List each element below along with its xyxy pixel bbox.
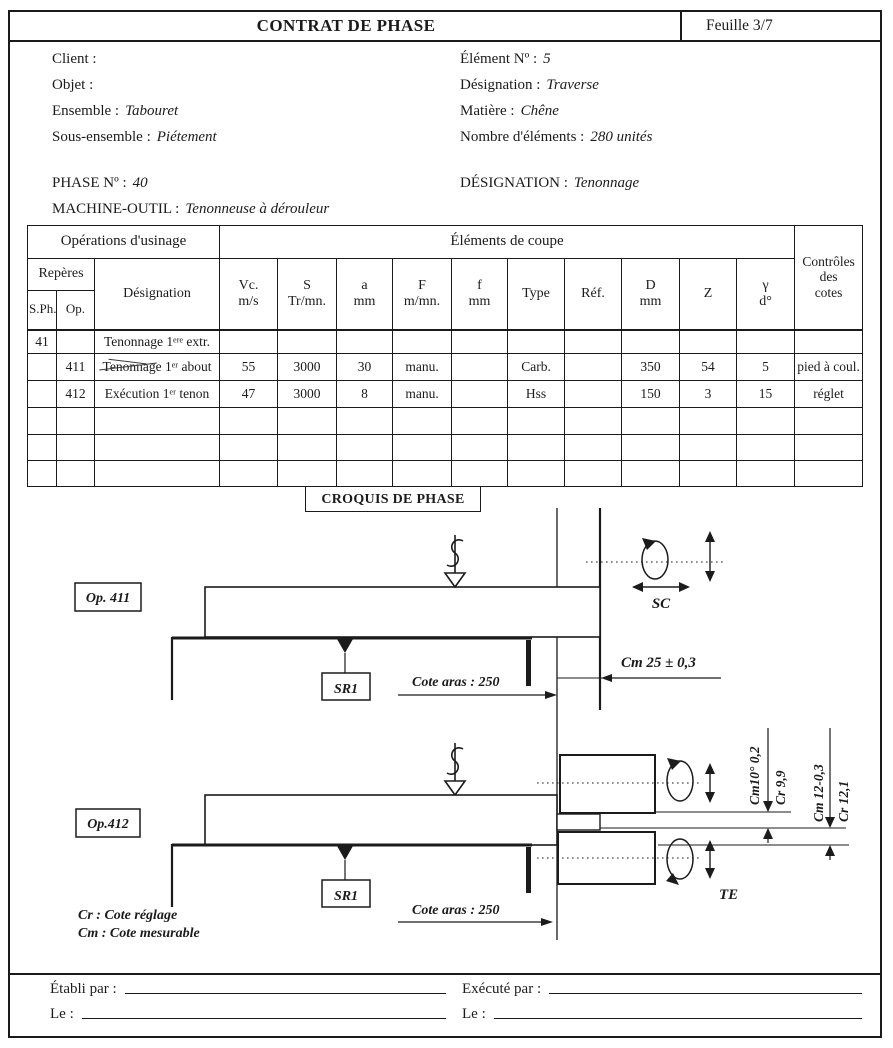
ensemble-label: Ensemble :: [52, 103, 119, 119]
table-cell: [508, 330, 565, 354]
ensemble-value: Tabouret: [125, 103, 178, 119]
op411-cm-arrowhead: [601, 674, 612, 682]
op411-drawing: Op. 411 SR1 Cote aras : 250 SC Cm: [75, 531, 726, 700]
signature-section: Établi par : Exécuté par : Le : Le :: [10, 973, 880, 1038]
objet-label: Objet :: [52, 77, 93, 93]
table-cell: [795, 330, 863, 354]
table-cell: [622, 461, 680, 487]
page-title: CONTRAT DE PHASE: [10, 12, 682, 40]
execute-par-row: Exécuté par :: [462, 981, 862, 998]
table-cell: [452, 354, 508, 381]
client-label: Client :: [52, 51, 97, 67]
table-cell: Tenonnage 1ᵉʳ about: [95, 354, 220, 381]
dim-cm12-label: Cm 12-0,3: [811, 764, 826, 822]
dim-cr99-label: Cr 9,9: [773, 770, 788, 805]
arrowhead: [705, 763, 715, 774]
table-row: 41Tenonnage 1ᵉʳᵉ extr.: [28, 330, 863, 354]
op412-cote-aras-label: Cote aras : 250: [412, 903, 500, 918]
table-cell: [680, 461, 737, 487]
le-right-label: Le :: [462, 1006, 486, 1023]
designation-label: Désignation :: [460, 77, 540, 93]
table-cell: [795, 435, 863, 461]
info-ensemble: Ensemble :Tabouret: [52, 98, 217, 124]
support-assembly-op411: SR1: [172, 637, 532, 700]
table-cell: [565, 381, 622, 408]
table-cell: 411: [57, 354, 95, 381]
info-phase: PHASE Nº :40: [52, 170, 329, 196]
table-row: [28, 435, 863, 461]
table-cell: [680, 435, 737, 461]
table-cell: Hss: [508, 381, 565, 408]
te-label: TE: [719, 887, 738, 903]
table-cell: [452, 408, 508, 435]
table-cell: [622, 435, 680, 461]
table-cell: 55: [220, 354, 278, 381]
nombre-value: 280 unités: [590, 129, 652, 145]
etabli-par-signature-line: [125, 981, 446, 994]
dim-cm10-label: Cm10° 0,2: [747, 746, 762, 805]
nombre-label: Nombre d'éléments :: [460, 129, 584, 145]
table-cell: [737, 435, 795, 461]
table-cell: [57, 408, 95, 435]
table-cell: [393, 461, 452, 487]
table-cell: [508, 461, 565, 487]
sous-ensemble-value: Piétement: [157, 129, 217, 145]
table-cell: 3: [680, 381, 737, 408]
op412-label: Op.412: [87, 817, 129, 832]
table-cell: [57, 435, 95, 461]
table-cell: [737, 408, 795, 435]
table-cell: [278, 408, 337, 435]
table-cell: [508, 408, 565, 435]
arrowhead: [763, 801, 773, 812]
support-assembly-op412: [172, 844, 532, 907]
header-f-cap: F m/mn.: [393, 259, 452, 330]
info-client: Client :: [52, 46, 217, 72]
matiere-label: Matière :: [460, 103, 515, 119]
info-matiere: Matière :Chêne: [460, 98, 652, 124]
info-right-column: Élément Nº :5 Désignation :Traverse Mati…: [460, 46, 652, 150]
sous-ensemble-label: Sous-ensemble :: [52, 129, 151, 145]
execute-par-signature-line: [549, 981, 862, 994]
table-cell: [278, 435, 337, 461]
element-value: 5: [543, 51, 551, 67]
header-d: D mm: [622, 259, 680, 330]
header-sph: S.Ph.: [28, 291, 57, 330]
op412-cote-aras-arrowhead: [541, 918, 553, 926]
table-cell: [220, 330, 278, 354]
phase-designation-value: Tenonnage: [574, 175, 639, 191]
group-controles: Contrôles des cotes: [795, 226, 863, 330]
table-cell: [278, 330, 337, 354]
table-cell: [337, 435, 393, 461]
table-cell: [337, 408, 393, 435]
contrat-de-phase-document: { "colors": { "ink": "#1b1b1b", "paper":…: [0, 0, 893, 1048]
etabli-par-row: Établi par :: [50, 981, 446, 998]
op411-cote-aras-label: Cote aras : 250: [412, 675, 500, 690]
sc-label: SC: [652, 596, 671, 612]
table-cell: [565, 354, 622, 381]
table-cell: pied à coul.: [795, 354, 863, 381]
table-cell: 30: [337, 354, 393, 381]
op411-cm-dimension-label: Cm 25 ± 0,3: [621, 655, 696, 671]
table-cell: réglet: [795, 381, 863, 408]
header-reperes: Repères: [28, 259, 95, 291]
table-cell: Tenonnage 1ᵉʳᵉ extr.: [95, 330, 220, 354]
info-nombre: Nombre d'éléments :280 unités: [460, 124, 652, 150]
arrowhead: [705, 792, 715, 803]
group-operations: Opérations d'usinage: [28, 226, 220, 259]
arrowhead: [705, 531, 715, 542]
arrowhead: [679, 582, 690, 592]
table-cell: [622, 330, 680, 354]
table-cell: manu.: [393, 354, 452, 381]
header-ref: Réf.: [565, 259, 622, 330]
dim-cr121-label: Cr 12,1: [836, 781, 851, 822]
operations-table-body: 41Tenonnage 1ᵉʳᵉ extr.411Tenonnage 1ᵉʳ a…: [28, 330, 863, 487]
table-cell: [737, 330, 795, 354]
legend-cr: Cr : Cote réglage: [78, 908, 177, 923]
table-cell: 3000: [278, 381, 337, 408]
table-row: [28, 408, 863, 435]
table-header-row-1: Repères Désignation Vc. m/s S Tr/mn. a m…: [28, 259, 863, 291]
table-cell: [565, 435, 622, 461]
correction-strike-mark: [99, 362, 157, 370]
execute-par-label: Exécuté par :: [462, 981, 541, 998]
phase-designation-block: DÉSIGNATION :Tenonnage: [460, 170, 639, 196]
table-cell: 350: [622, 354, 680, 381]
table-cell: 41: [28, 330, 57, 354]
arrowhead: [632, 582, 643, 592]
arrowhead: [705, 571, 715, 582]
table-cell: Exécution 1ᵉʳ tenon: [95, 381, 220, 408]
table-cell: [28, 354, 57, 381]
operations-table: Opérations d'usinage Éléments de coupe C…: [27, 225, 863, 487]
phase-label: PHASE Nº :: [52, 175, 127, 191]
header-type: Type: [508, 259, 565, 330]
tenon-stub: [557, 814, 600, 830]
header-a: a mm: [337, 259, 393, 330]
croquis-title-box: CROQUIS DE PHASE: [305, 486, 481, 512]
op411-cote-aras-arrowhead: [545, 691, 557, 699]
table-cell: 5: [737, 354, 795, 381]
table-cell: [57, 330, 95, 354]
info-designation: Désignation :Traverse: [460, 72, 652, 98]
table-cell: [28, 435, 57, 461]
table-cell: [28, 408, 57, 435]
table-cell: [393, 435, 452, 461]
table-cell: [452, 461, 508, 487]
header-designation: Désignation: [95, 259, 220, 330]
table-cell: [220, 435, 278, 461]
designation-value: Traverse: [546, 77, 599, 93]
title-band: CONTRAT DE PHASE Feuille 3/7: [8, 10, 882, 42]
phase-designation-label: DÉSIGNATION :: [460, 175, 568, 191]
table-cell: Carb.: [508, 354, 565, 381]
le-right-row: Le :: [462, 1006, 862, 1023]
table-cell: [220, 461, 278, 487]
table-cell: [565, 408, 622, 435]
table-cell: [95, 408, 220, 435]
table-cell: [95, 461, 220, 487]
table-cell: [680, 408, 737, 435]
header-op: Op.: [57, 291, 95, 330]
machine-label: MACHINE-OUTIL :: [52, 201, 179, 217]
legend-cm: Cm : Cote mesurable: [78, 926, 200, 941]
le-left-label: Le :: [50, 1006, 74, 1023]
header-z: Z: [680, 259, 737, 330]
group-elements-de-coupe: Éléments de coupe: [220, 226, 795, 259]
table-cell: [278, 461, 337, 487]
info-machine: MACHINE-OUTIL :Tenonneuse à dérouleur: [52, 196, 329, 222]
header-s: S Tr/mn.: [278, 259, 337, 330]
le-left-date-line: [82, 1006, 446, 1019]
workpiece-op412: [205, 795, 557, 845]
table-cell: [393, 330, 452, 354]
table-cell: 412: [57, 381, 95, 408]
phase-value: 40: [133, 175, 148, 191]
stop-tick: [526, 640, 531, 686]
le-right-date-line: [494, 1006, 862, 1019]
etabli-par-label: Établi par :: [50, 981, 117, 998]
table-cell: [452, 381, 508, 408]
arrowhead: [705, 868, 715, 879]
table-row: 411Tenonnage 1ᵉʳ about55300030manu.Carb.…: [28, 354, 863, 381]
table-cell: [622, 408, 680, 435]
table-cell: [337, 461, 393, 487]
clamp-symbol-op411: [445, 535, 465, 587]
table-cell: 54: [680, 354, 737, 381]
element-label: Élément Nº :: [460, 51, 537, 67]
info-left-column: Client : Objet : Ensemble :Tabouret Sous…: [52, 46, 217, 150]
table-cell: [220, 408, 278, 435]
support-triangle: [337, 639, 353, 653]
table-cell: [337, 330, 393, 354]
op412-drawing: Op.412 Cote aras : 250 TE Cm10° 0,2: [76, 728, 851, 926]
info-sous-ensemble: Sous-ensemble :Piétement: [52, 124, 217, 150]
table-cell: [95, 435, 220, 461]
matiere-value: Chêne: [521, 103, 559, 119]
info-phase-designation: DÉSIGNATION :Tenonnage: [460, 170, 639, 196]
header-vc: Vc. m/s: [220, 259, 278, 330]
table-cell: [452, 435, 508, 461]
table-cell: [28, 381, 57, 408]
machine-value: Tenonneuse à dérouleur: [185, 201, 329, 217]
table-cell: manu.: [393, 381, 452, 408]
table-cell: [737, 461, 795, 487]
sheet-number: Feuille 3/7: [680, 12, 880, 40]
table-cell: [795, 408, 863, 435]
table-row: 412Exécution 1ᵉʳ tenon4730008manu.Hss150…: [28, 381, 863, 408]
header-f: f mm: [452, 259, 508, 330]
upper-cutter-block: [560, 755, 655, 813]
table-cell: [28, 461, 57, 487]
info-objet: Objet :: [52, 72, 217, 98]
workpiece-op411: [205, 587, 600, 637]
table-row: [28, 461, 863, 487]
table-cell: [565, 330, 622, 354]
table-cell: 15: [737, 381, 795, 408]
table-cell: [57, 461, 95, 487]
clamp-symbol-op412: [445, 743, 465, 795]
table-cell: [452, 330, 508, 354]
table-cell: 8: [337, 381, 393, 408]
op411-label: Op. 411: [86, 591, 130, 606]
table-cell: [393, 408, 452, 435]
info-element: Élément Nº :5: [460, 46, 652, 72]
table-group-header-row: Opérations d'usinage Éléments de coupe C…: [28, 226, 863, 259]
arrowhead: [825, 817, 835, 828]
croquis-drawing: Op. 411 SR1 Cote aras : 250 SC Cm: [8, 487, 884, 963]
sr1-label: SR1: [334, 682, 358, 697]
arrowhead: [667, 758, 681, 770]
table-cell: [565, 461, 622, 487]
table-cell: 150: [622, 381, 680, 408]
table-cell: 47: [220, 381, 278, 408]
phase-block: PHASE Nº :40 MACHINE-OUTIL :Tenonneuse à…: [52, 170, 329, 222]
le-left-row: Le :: [50, 1006, 446, 1023]
table-cell: [680, 330, 737, 354]
header-gamma: γ d°: [737, 259, 795, 330]
table-cell: [795, 461, 863, 487]
table-cell: [508, 435, 565, 461]
table-cell: 3000: [278, 354, 337, 381]
